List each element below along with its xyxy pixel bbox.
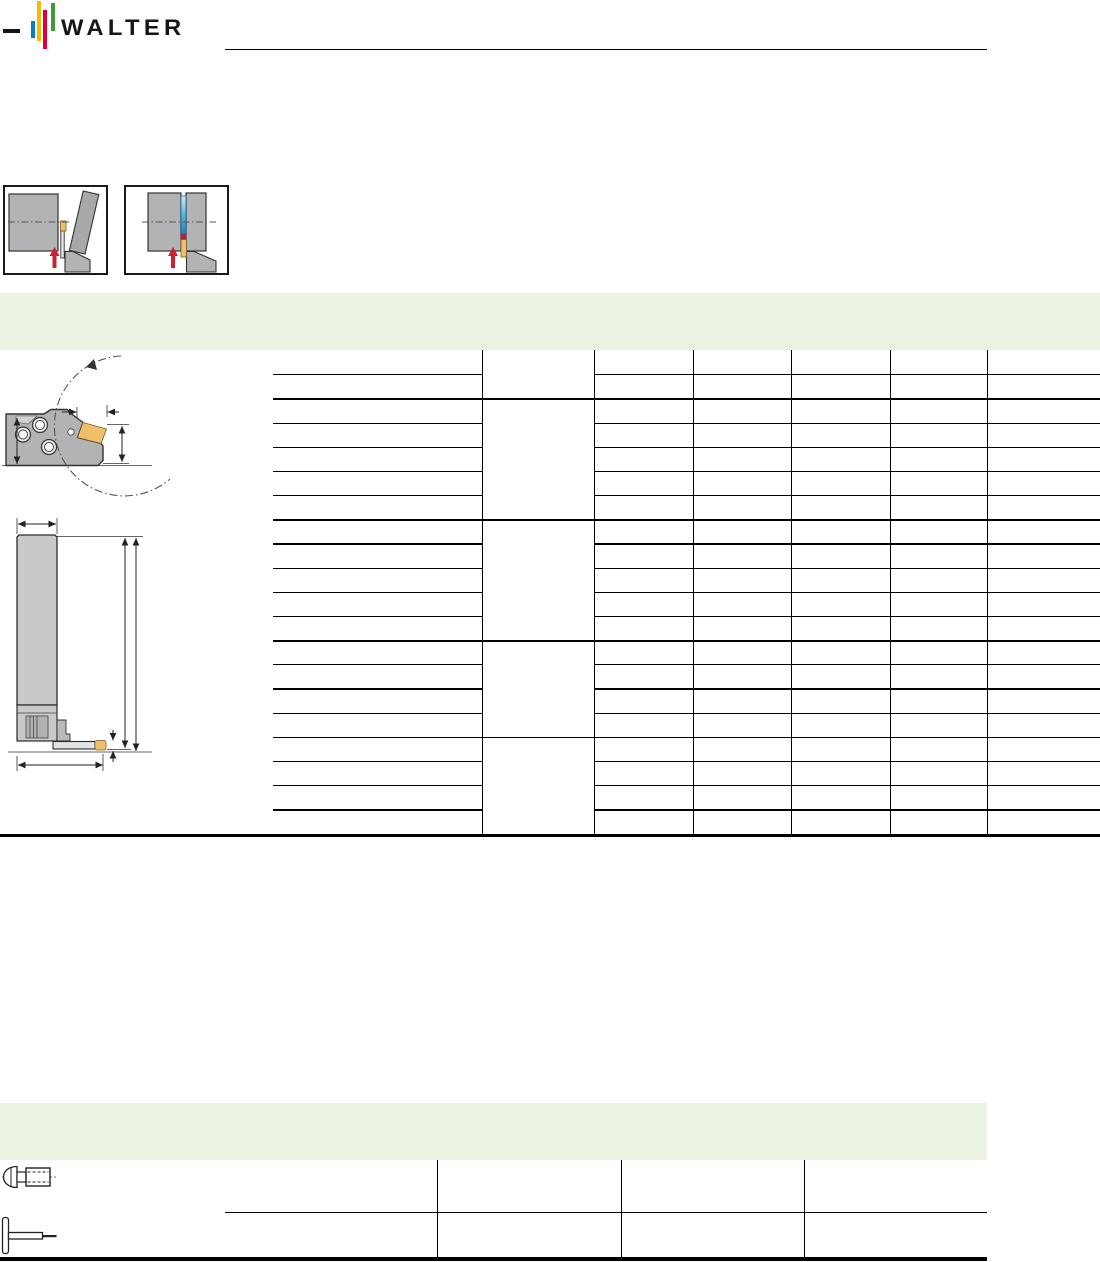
table-grid-line	[273, 785, 482, 786]
table-grid-line	[482, 350, 483, 834]
catalog-page: WALTER	[0, 0, 1100, 1262]
table-grid-line	[273, 592, 482, 593]
clamp-screw	[68, 429, 74, 435]
torx-key-icon	[0, 1215, 64, 1257]
table-grid-line	[594, 568, 1100, 569]
table-grid-line	[594, 616, 1100, 617]
table-grid-line	[273, 664, 482, 665]
table-grid-line	[273, 688, 482, 689]
spare-parts-header-band	[0, 1103, 987, 1160]
table-grid-line	[594, 543, 1100, 544]
table-grid-line	[594, 713, 1100, 714]
table-grid-line	[594, 761, 1100, 762]
grooving-art	[126, 187, 227, 273]
table-grid-line	[594, 664, 1100, 665]
table-grid-line	[594, 447, 1100, 448]
logo-wordmark: WALTER	[61, 15, 185, 41]
header-rule	[225, 49, 987, 51]
table-grid-line	[0, 1257, 987, 1261]
table-grid-line	[273, 543, 482, 544]
table-grid-line	[273, 568, 482, 569]
table-grid-line	[273, 495, 482, 496]
insert-tip	[181, 234, 186, 240]
cartridge-drawing	[0, 355, 230, 505]
clamping-screw-icon	[2, 1163, 58, 1193]
table-grid-line	[987, 350, 988, 834]
blade	[61, 231, 64, 258]
table-grid-line	[273, 447, 482, 448]
logo-dash	[3, 29, 20, 33]
table-grid-line	[594, 423, 1100, 424]
groove	[181, 196, 186, 234]
main-table-header-band	[0, 293, 1100, 350]
support-arm	[53, 742, 95, 750]
logo-bar-green	[51, 3, 55, 31]
table-grid-line	[273, 423, 482, 424]
blade-drawing	[0, 510, 170, 780]
table-grid-line	[437, 1160, 438, 1257]
logo-bar-blue	[31, 21, 35, 38]
grooving-pictogram	[124, 185, 229, 275]
table-grid-line	[594, 785, 1100, 786]
table-grid-line	[594, 374, 1100, 375]
table-grid-line	[594, 592, 1100, 593]
tool-holder	[65, 252, 90, 273]
table-grid-line	[890, 350, 891, 834]
table-grid-line	[273, 761, 482, 762]
table-grid-line	[273, 471, 482, 472]
parting-off-art	[5, 187, 106, 273]
logo-bar-yellow	[37, 1, 41, 41]
table-grid-line	[594, 350, 595, 834]
walter-logo: WALTER	[3, 0, 223, 52]
table-grid-line	[273, 713, 482, 714]
table-grid-line	[273, 616, 482, 617]
parting-off-pictogram	[3, 185, 108, 275]
table-grid-line	[273, 640, 1100, 642]
blade-body	[17, 535, 106, 750]
falling-slug	[69, 191, 98, 254]
table-grid-line	[621, 1160, 622, 1257]
table-grid-line	[804, 1160, 805, 1257]
table-grid-line	[225, 1212, 987, 1213]
table-grid-line	[594, 688, 1100, 689]
table-grid-line	[273, 519, 1100, 521]
table-grid-line	[273, 398, 1100, 400]
table-grid-line	[791, 350, 792, 834]
table-grid-line	[273, 809, 482, 810]
table-grid-line	[273, 374, 482, 375]
table-grid-line	[594, 471, 1100, 472]
table-grid-line	[0, 834, 1100, 838]
table-grid-line	[693, 350, 694, 834]
table-grid-line	[594, 809, 1100, 810]
table-grid-line	[594, 495, 1100, 496]
insert	[95, 741, 106, 751]
blade	[181, 240, 187, 258]
tool-holder	[187, 252, 217, 273]
logo-bar-red	[43, 10, 47, 49]
table-grid-line	[273, 737, 1100, 739]
cartridge-body	[6, 410, 107, 466]
